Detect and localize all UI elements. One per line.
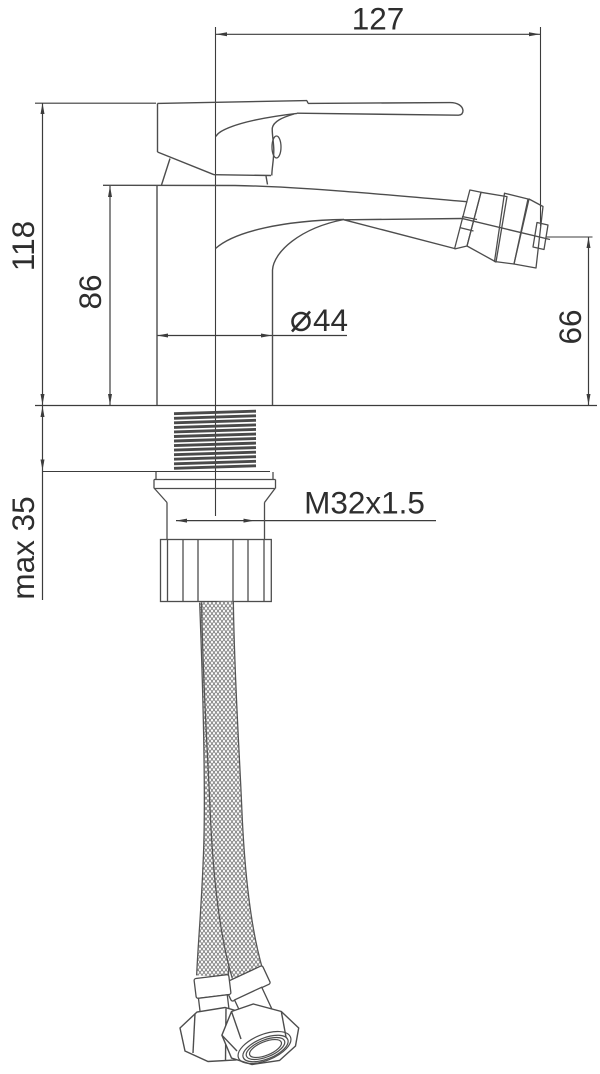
svg-text:127: 127: [352, 1, 405, 37]
svg-text:118: 118: [5, 221, 41, 271]
svg-text:M32x1.5: M32x1.5: [304, 485, 425, 521]
svg-text:44: 44: [313, 302, 348, 338]
svg-text:max 35: max 35: [5, 496, 41, 599]
svg-text:66: 66: [552, 309, 588, 344]
svg-text:86: 86: [72, 274, 108, 309]
